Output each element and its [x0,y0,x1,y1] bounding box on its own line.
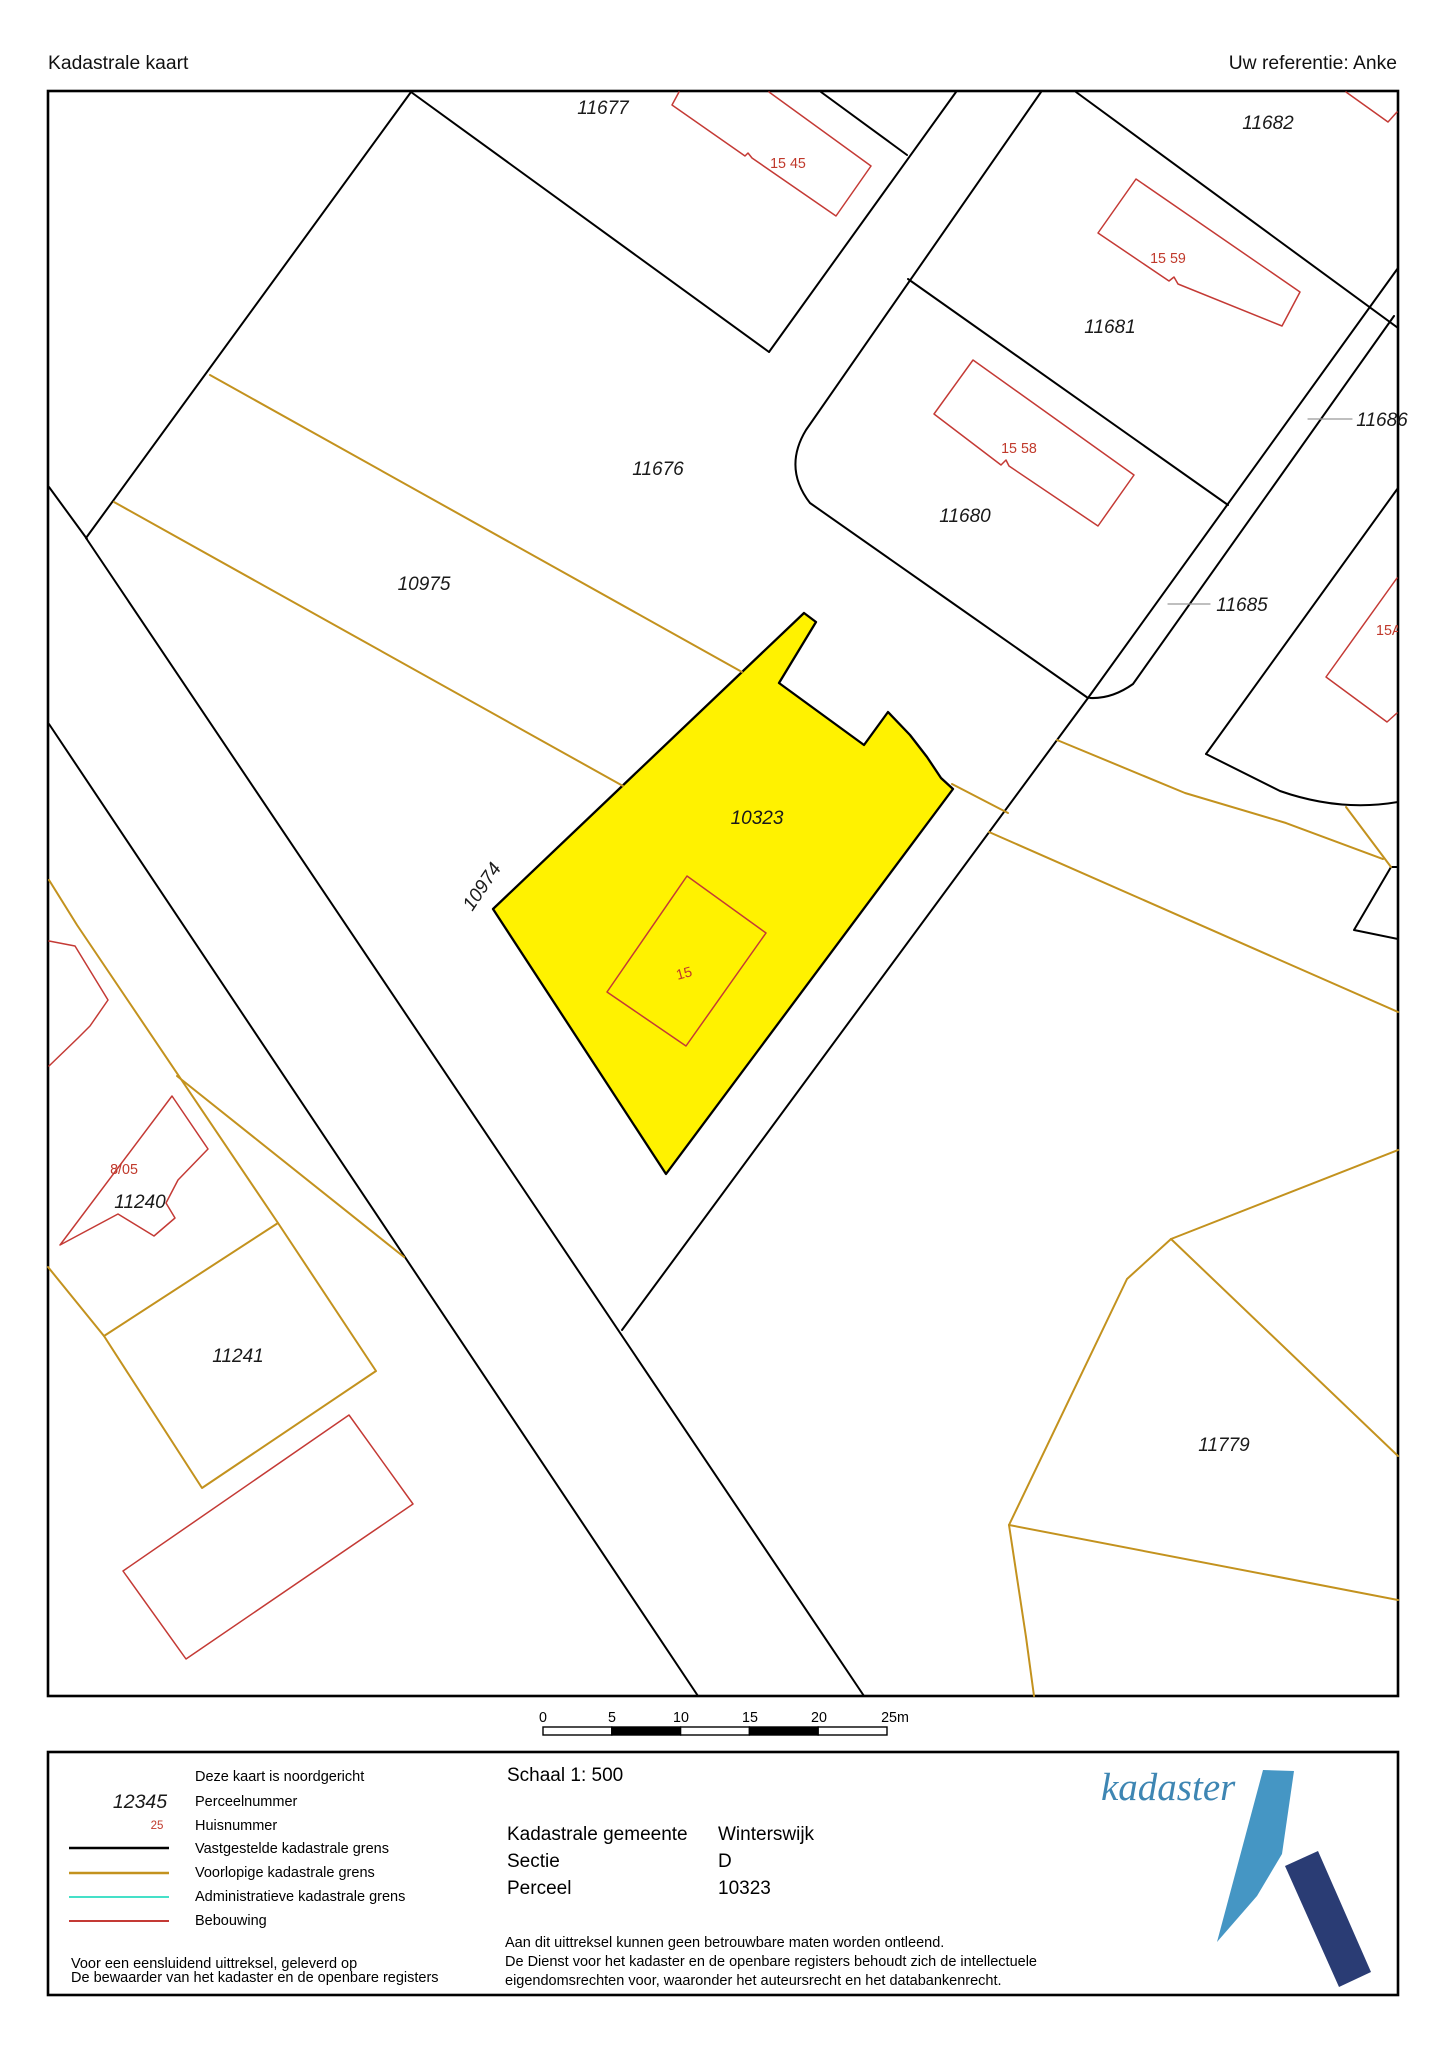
svg-text:11779: 11779 [1198,1435,1250,1456]
svg-text:Kadastrale gemeente: Kadastrale gemeente [507,1824,688,1845]
svg-text:11681: 11681 [1084,317,1135,338]
svg-text:Schaal 1: 500: Schaal 1: 500 [507,1765,623,1786]
svg-text:11686: 11686 [1356,410,1408,431]
svg-text:11676: 11676 [632,459,684,480]
svg-text:20: 20 [811,1710,827,1726]
svg-text:5: 5 [608,1710,616,1726]
svg-text:Kadastrale kaart: Kadastrale kaart [48,53,189,74]
svg-text:eigendomsrechten voor, waarond: eigendomsrechten voor, waaronder het aut… [505,1973,1002,1989]
svg-text:25: 25 [151,1820,164,1832]
svg-text:Uw referentie: Anke: Uw referentie: Anke [1229,53,1397,74]
svg-text:25m: 25m [881,1710,909,1726]
svg-text:12345: 12345 [113,1791,167,1813]
svg-text:11241: 11241 [212,1346,263,1367]
svg-text:Bebouwing: Bebouwing [195,1913,267,1929]
svg-text:Winterswijk: Winterswijk [718,1824,815,1845]
svg-text:15 59: 15 59 [1150,251,1186,267]
svg-text:De bewaarder van het kadaster: De bewaarder van het kadaster en de open… [71,1970,439,1986]
svg-text:kadaster: kadaster [1101,1766,1236,1809]
svg-text:10: 10 [673,1710,689,1726]
svg-text:Sectie: Sectie [507,1851,560,1872]
svg-text:10323: 10323 [731,808,784,829]
svg-text:11685: 11685 [1216,595,1268,616]
svg-text:11240: 11240 [114,1192,166,1213]
svg-text:15 58: 15 58 [1001,441,1037,457]
svg-text:11682: 11682 [1242,113,1294,134]
svg-text:Deze kaart is noordgericht: Deze kaart is noordgericht [195,1769,364,1785]
svg-text:15: 15 [742,1710,758,1726]
svg-text:D: D [718,1851,732,1872]
svg-text:15 45: 15 45 [770,156,806,172]
svg-text:Administratieve kadastrale gre: Administratieve kadastrale grens [195,1889,405,1905]
svg-text:0: 0 [539,1710,547,1726]
svg-text:10323: 10323 [718,1878,771,1899]
svg-text:Perceelnummer: Perceelnummer [195,1794,298,1810]
svg-text:8/05: 8/05 [110,1162,138,1178]
svg-text:Perceel: Perceel [507,1878,571,1899]
svg-text:11680: 11680 [939,506,991,527]
svg-text:Huisnummer: Huisnummer [195,1818,277,1834]
svg-text:Aan dit uittreksel kunnen geen: Aan dit uittreksel kunnen geen betrouwba… [505,1935,944,1951]
svg-text:Vastgestelde kadastrale grens: Vastgestelde kadastrale grens [195,1841,389,1857]
svg-text:De Dienst voor het kadaster en: De Dienst voor het kadaster en de openba… [505,1954,1037,1970]
svg-text:10975: 10975 [398,574,451,595]
svg-text:Voorlopige kadastrale grens: Voorlopige kadastrale grens [195,1865,375,1881]
svg-text:11677: 11677 [577,98,630,119]
